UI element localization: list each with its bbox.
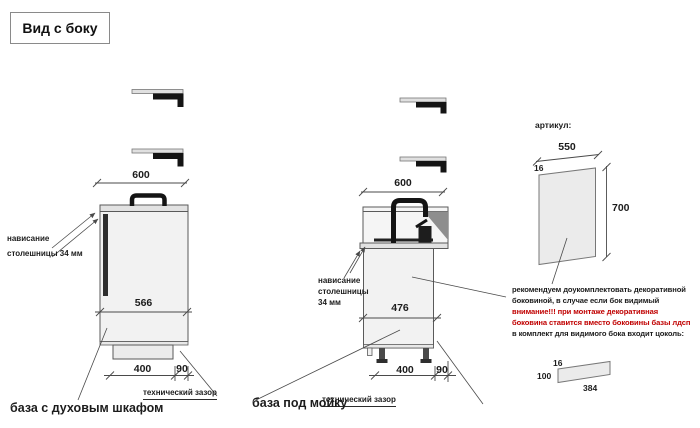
plinth-length-dimension: 384 [583, 383, 597, 393]
oven-width-dimension: 600 [97, 169, 185, 181]
side-panel-drawing [539, 168, 596, 265]
oven-gap-dimension: 90 [172, 363, 192, 375]
drawing-linework [0, 0, 700, 428]
oven-technical-gap-label: технический зазор [143, 388, 217, 400]
panel-height-dimension: 700 [612, 202, 630, 214]
oven-handle-icon [132, 196, 165, 207]
view-title-box: Вид с боку [10, 12, 110, 44]
oven-cabinet-caption: база с духовым шкафом [10, 401, 163, 415]
panel-thickness-dimension: 16 [534, 163, 543, 173]
panel-width-dimension: 550 [539, 141, 595, 153]
note-line-1: рекомендуем доукомплектовать декоративно… [512, 285, 686, 294]
sink-cabinet-body [364, 249, 434, 349]
oven-cabinet-plinth [113, 345, 173, 359]
oven-cabinet-bottom-panel [100, 342, 188, 346]
mount-bracket-icon [400, 157, 447, 173]
drawing-canvas: Вид с боку 600 566 400 90 нависание стол… [0, 0, 700, 428]
oven-countertop [100, 205, 188, 212]
mount-bracket-icon [400, 98, 447, 114]
mount-bracket-icon [132, 149, 184, 167]
note-line-3: в комплект для видимого бока входит цоко… [512, 329, 684, 338]
adjustable-leg-icon [377, 348, 388, 363]
note-line-2: боковиной, в случае если бок видимый [512, 296, 659, 305]
article-label: артикул: [535, 120, 571, 130]
oven-plinth-dimension: 400 [110, 363, 175, 375]
note-warning-line-1: внимание!!! при монтаже декоративная [512, 307, 658, 316]
oven-cabinet-body [100, 212, 188, 342]
sink-width-dimension: 600 [363, 177, 443, 189]
oven-door-edge [103, 214, 108, 296]
sink-cabinet-caption: база под мойку [252, 396, 347, 410]
view-title: Вид с боку [22, 20, 97, 36]
mount-bracket-icon [132, 90, 184, 108]
sink-plinth-dimension: 400 [375, 364, 435, 376]
oven-cabinet-drawing [100, 196, 188, 360]
sink-overhang-label: нависание столешницы 34 мм [318, 276, 369, 308]
plinth-height-dimension: 100 [537, 371, 551, 381]
sink-countertop [360, 243, 448, 249]
oven-overhang-label: нависание столешницы 34 мм [7, 234, 83, 258]
adjustable-leg-icon [421, 348, 432, 363]
oven-inner-dimension: 566 [95, 297, 192, 309]
note-warning-line-2: боковина ставится вместо боковины базы л… [512, 318, 690, 327]
sink-gap-dimension: 90 [432, 364, 452, 376]
sink-cabinet-bottom-panel [364, 345, 434, 349]
plinth-strip-drawing [558, 362, 610, 383]
plinth-thickness-dimension: 16 [553, 358, 562, 368]
sink-inner-dimension: 476 [363, 302, 437, 314]
